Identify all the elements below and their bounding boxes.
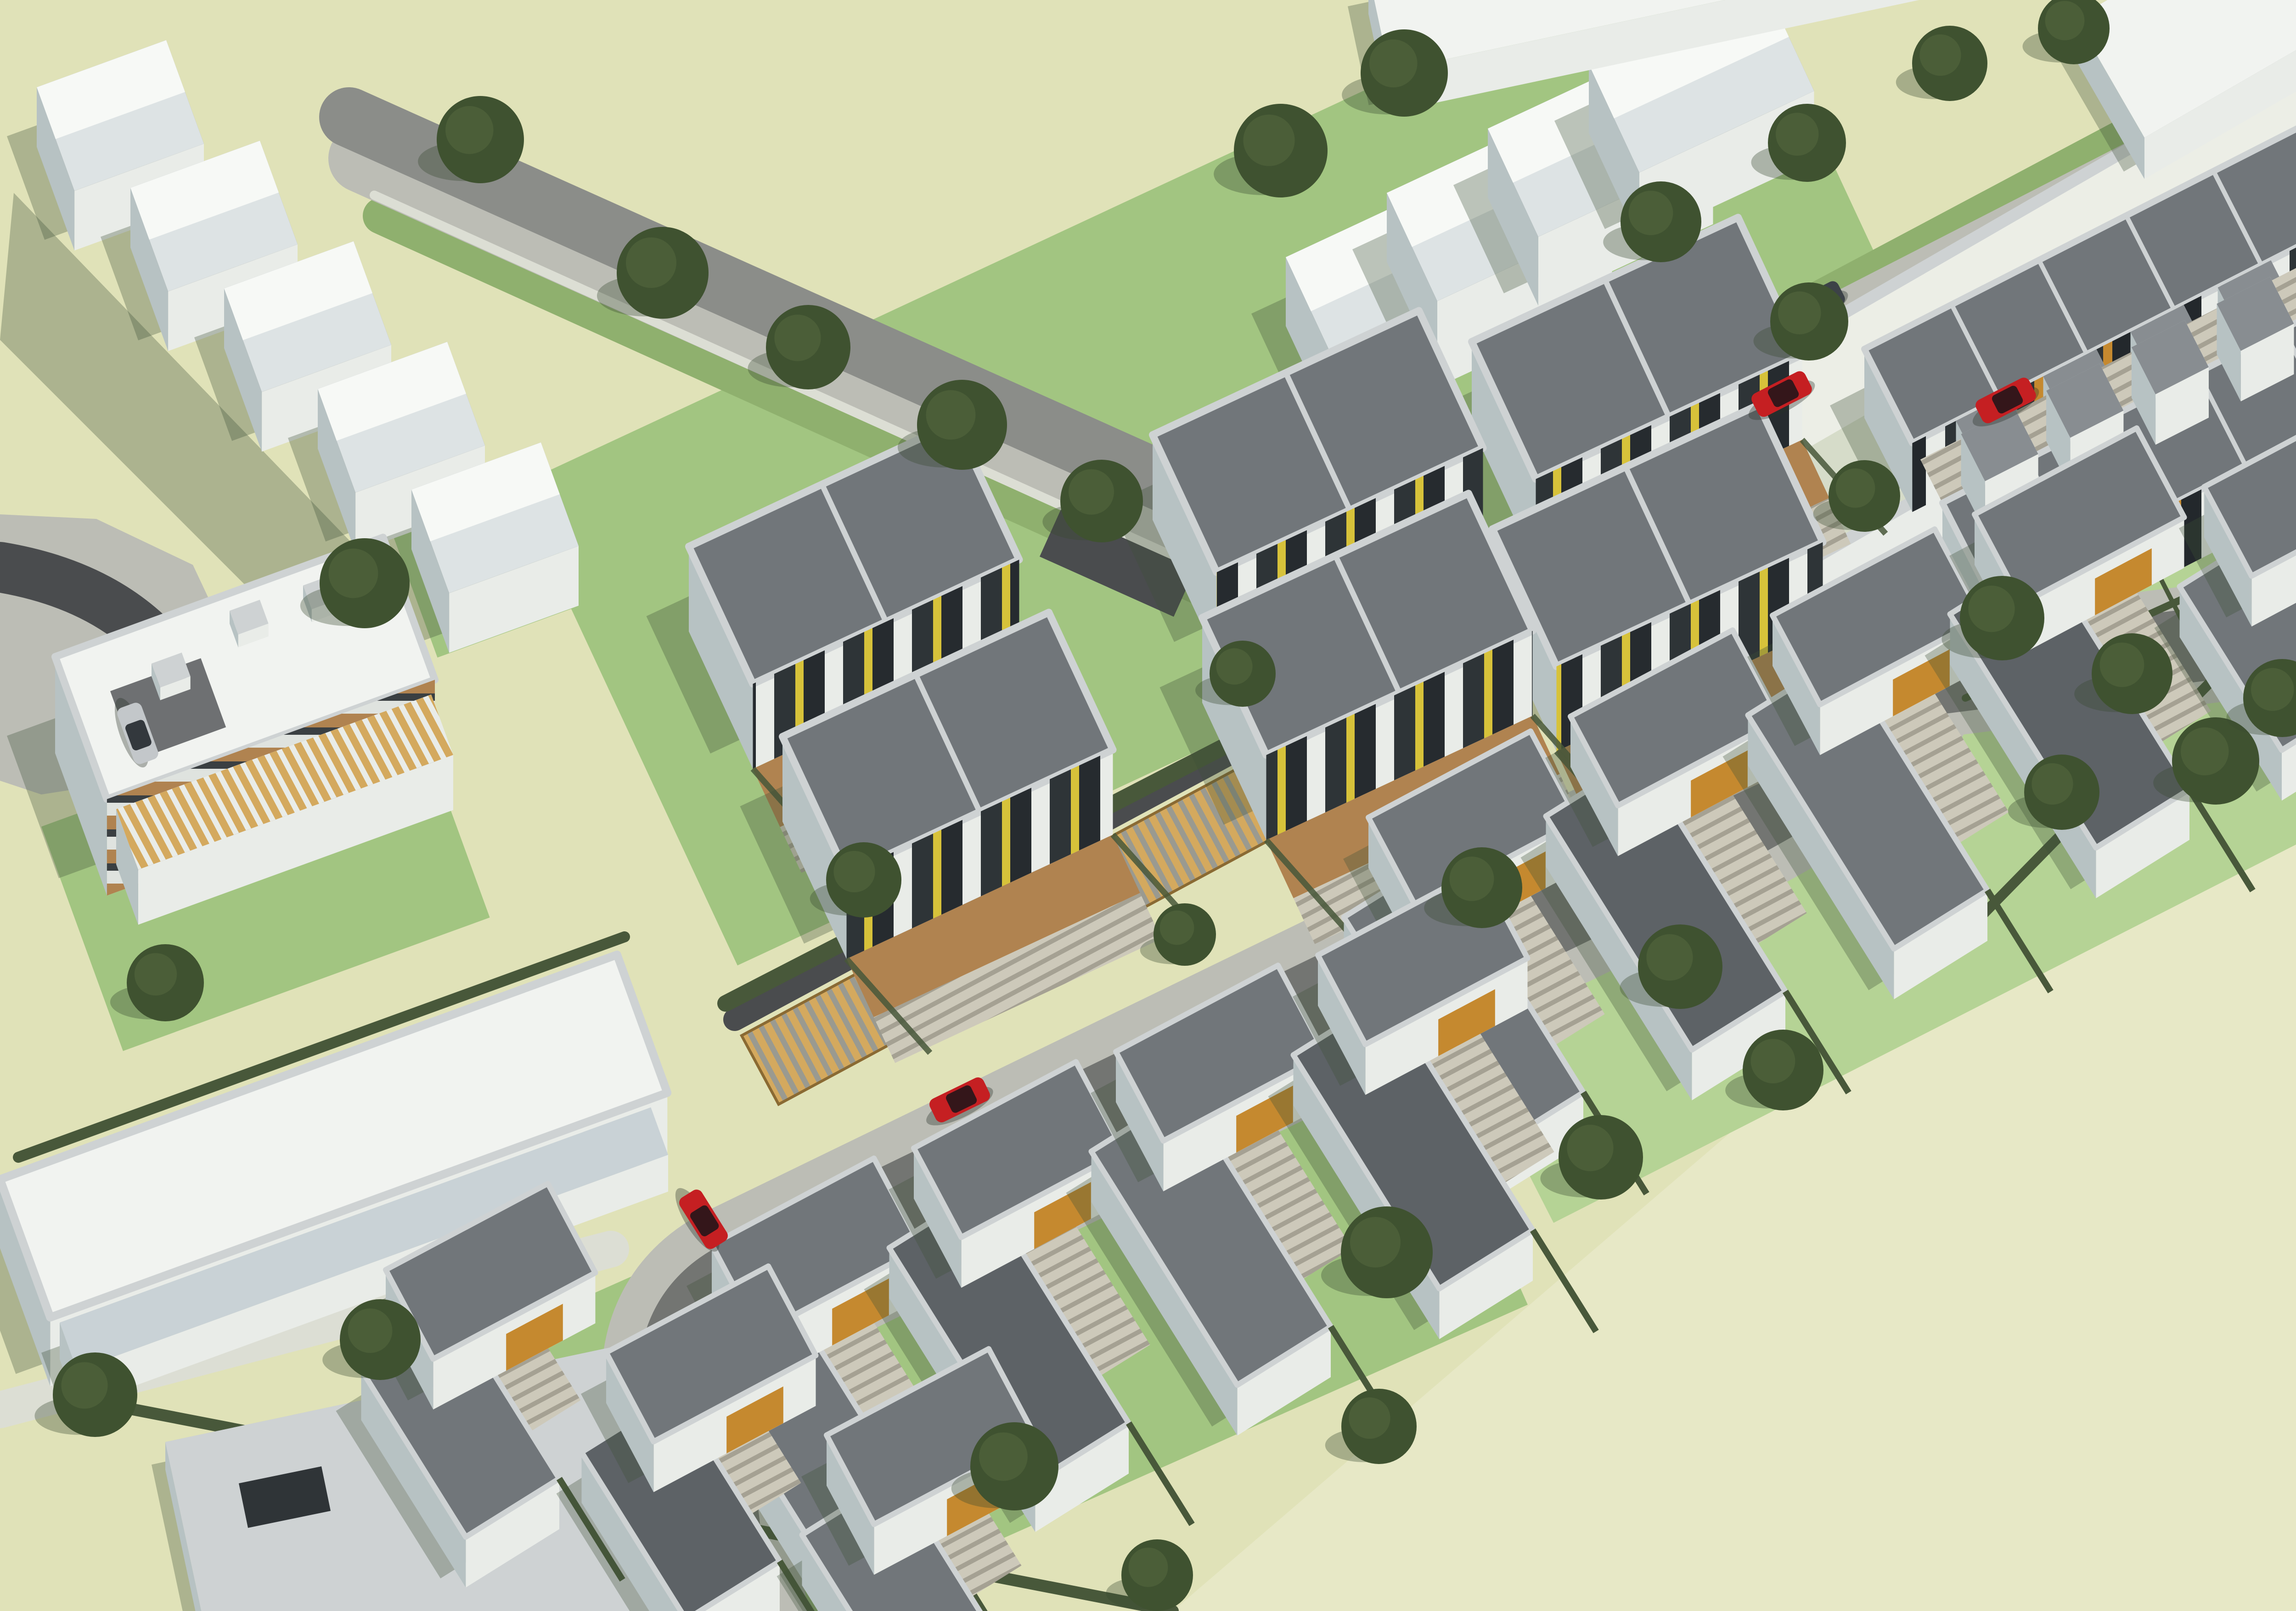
tree-canopy-highlight — [329, 549, 378, 598]
tree-canopy-highlight — [833, 851, 875, 892]
tree-canopy-highlight — [1567, 1125, 1613, 1171]
tree-canopy-highlight — [1778, 292, 1821, 335]
tree-canopy-highlight — [1776, 113, 1819, 156]
tree-canopy-highlight — [1069, 469, 1114, 515]
tree-canopy-highlight — [1129, 1548, 1168, 1587]
tree-canopy-highlight — [1450, 856, 1494, 901]
tree-canopy-highlight — [61, 1362, 107, 1408]
tree-canopy-highlight — [348, 1308, 393, 1353]
site-plan-svg: Aerial 3D rendering of a suburban housin… — [0, 0, 2296, 1611]
aerial-site-render: Aerial 3D rendering of a suburban housin… — [0, 0, 2296, 1611]
tree-canopy-highlight — [1629, 191, 1673, 235]
tree-canopy-highlight — [2181, 727, 2229, 776]
tree-canopy-highlight — [2251, 668, 2294, 711]
tree-canopy-highlight — [445, 106, 494, 154]
tree-canopy-highlight — [1216, 648, 1252, 685]
tree-canopy-highlight — [1160, 911, 1194, 945]
tree-canopy-highlight — [135, 953, 177, 995]
tree-canopy-highlight — [1350, 1217, 1401, 1267]
tree-canopy-highlight — [2032, 763, 2073, 805]
tree-canopy-highlight — [774, 315, 821, 361]
tree-canopy-highlight — [926, 390, 976, 440]
tree-canopy-highlight — [1243, 114, 1294, 166]
tree-canopy-highlight — [1349, 1397, 1390, 1439]
tree-canopy-highlight — [1919, 34, 1961, 76]
tree-canopy-highlight — [1369, 39, 1418, 88]
tree-canopy-highlight — [1836, 468, 1875, 508]
tree-canopy-highlight — [979, 1432, 1028, 1481]
tree-canopy-highlight — [2045, 1, 2085, 40]
tree-canopy-highlight — [1646, 934, 1693, 980]
tree-canopy-highlight — [1968, 586, 2015, 632]
tree-canopy-highlight — [2100, 642, 2144, 687]
tree-canopy-highlight — [626, 237, 676, 288]
tree-canopy-highlight — [1751, 1039, 1795, 1083]
